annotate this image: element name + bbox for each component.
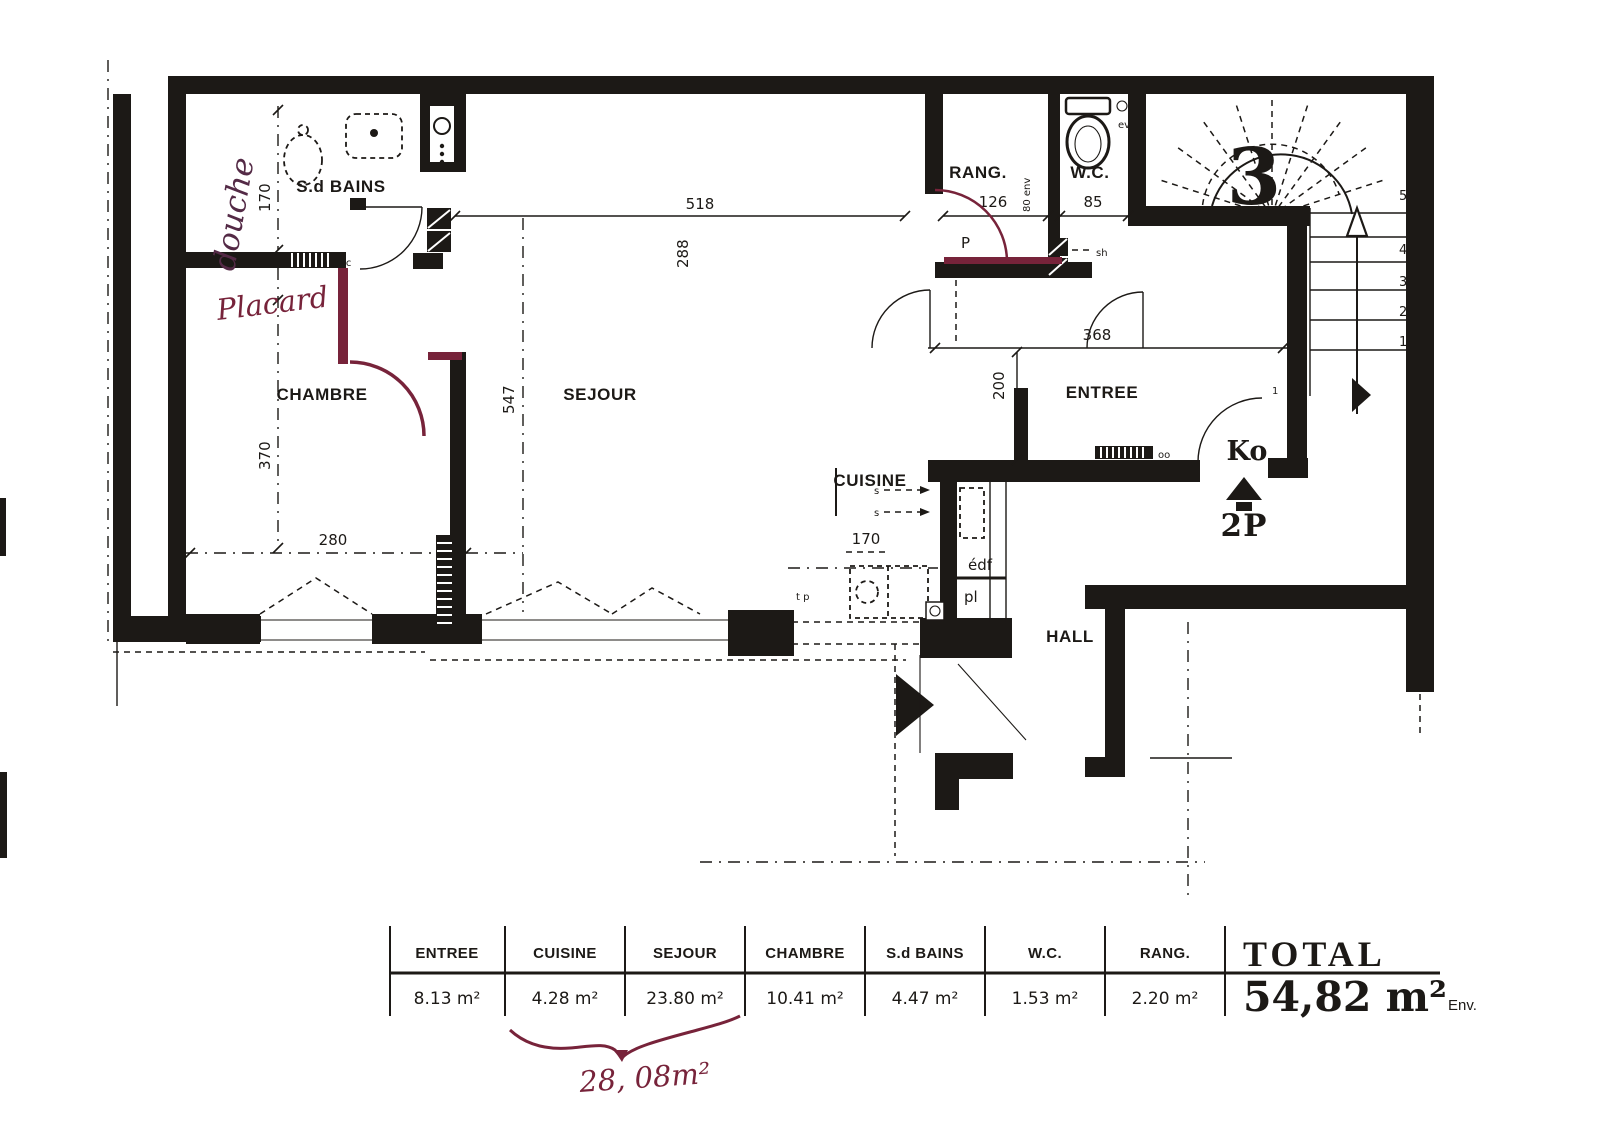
stair-arrow-up [1347, 208, 1367, 236]
col-header: CUISINE [533, 945, 597, 962]
shaft-label-edf: édf [968, 556, 993, 574]
col-value: 1.53 m² [1012, 989, 1079, 1009]
doors [360, 207, 1262, 462]
room-label-sejour: SEJOUR [563, 385, 637, 404]
label-2p: 2P [1221, 508, 1268, 544]
window-sejour-2 [612, 588, 700, 614]
room-label-sdbains: S.d BAINS [296, 177, 385, 196]
dimension-texts: 518 288 126 85 368 200 547 170 370 280 1… [256, 178, 1111, 549]
surface-table: ENTREE CUISINE SEJOUR CHAMBRE S.d BAINS … [390, 926, 1477, 1021]
col-value: 23.80 m² [646, 989, 723, 1009]
label-ko: Ko [1227, 436, 1268, 467]
room-label-chambre: CHAMBRE [276, 385, 367, 404]
col-value: 2.20 m² [1132, 989, 1199, 1009]
col-value: 8.13 m² [414, 989, 481, 1009]
col-header: CHAMBRE [765, 945, 844, 962]
dim-518: 518 [686, 195, 715, 213]
dim-80-env: 80 env [1022, 178, 1033, 212]
dim-280: 280 [319, 531, 348, 549]
dim-200: 200 [990, 371, 1008, 400]
total-suffix: Env. [1448, 997, 1477, 1014]
unit-arrow-icon [1226, 477, 1262, 500]
stair-arrow-tail-flag [1352, 378, 1371, 412]
col-header: RANG. [1140, 945, 1190, 962]
hall-direction-arrow [896, 674, 934, 736]
col-header: SEJOUR [653, 945, 717, 962]
dim-85: 85 [1083, 193, 1102, 211]
label-ev: ev [1118, 120, 1130, 131]
label-vc: vc [340, 258, 351, 269]
window-chambre [260, 578, 372, 614]
closet-rail-chambre [436, 535, 453, 630]
kitchen-counter [850, 566, 928, 618]
corridor-door-arc [872, 290, 930, 348]
dim-288: 288 [674, 239, 692, 268]
room-label-wc: W.C. [1070, 163, 1109, 182]
total-header: TOTAL [1243, 934, 1386, 974]
vent-icon [1117, 101, 1127, 111]
closet-rail-bath [292, 253, 328, 267]
label-s2: s [874, 508, 879, 519]
label-door-1: 1 [1272, 386, 1278, 397]
label-p: P [961, 234, 970, 252]
room-label-hall: HALL [1046, 627, 1094, 646]
label-oo: oo [1158, 450, 1170, 461]
bathroom-door-arc [360, 207, 422, 269]
dimension-ticks [185, 105, 1288, 558]
col-value: 4.47 m² [892, 989, 959, 1009]
staircase: 5 4 3 2 1 3 [1154, 98, 1407, 414]
table-value-row: 8.13 m² 4.28 m² 23.80 m² 10.41 m² 4.47 m… [414, 973, 1477, 1021]
scan-artifacts [0, 60, 108, 858]
handwritten-area-note: 28, 08m² [577, 1056, 711, 1099]
label-sh: sh [1096, 248, 1108, 259]
label-s1: s [874, 486, 879, 497]
col-value: 4.28 m² [532, 989, 599, 1009]
windows [258, 578, 920, 644]
room-label-cuisine: CUISINE [833, 471, 906, 490]
red-wall-mark [338, 268, 348, 364]
dim-547: 547 [500, 385, 518, 414]
room-label-rang: RANG. [949, 163, 1007, 182]
wc-toilet-tank [1066, 98, 1110, 114]
table-header-row: ENTREE CUISINE SEJOUR CHAMBRE S.d BAINS … [415, 934, 1385, 974]
kitchen-sink-icon [856, 581, 878, 603]
handwritten-placard: Placard [214, 280, 330, 328]
closet-rail-entree [1095, 446, 1153, 459]
dim-170-cuisine: 170 [852, 530, 881, 548]
room-labels: S.d BAINS CHAMBRE SEJOUR CUISINE ENTREE … [276, 163, 1138, 646]
room-label-entree: ENTREE [1066, 383, 1139, 402]
label-tp: t p [796, 592, 809, 603]
window-sejour-1 [486, 582, 612, 614]
col-value: 10.41 m² [766, 989, 843, 1009]
col-header: S.d BAINS [886, 945, 964, 962]
floor-plan-drawing: 5 4 3 2 1 3 [0, 0, 1600, 1131]
dim-370: 370 [256, 441, 274, 470]
shaft-label-pl: pl [964, 588, 978, 606]
col-header: ENTREE [415, 945, 478, 962]
total-value: 54,82 m² [1243, 973, 1447, 1021]
scanned-floor-plan: 5 4 3 2 1 3 [0, 0, 1600, 1131]
unit-tag: Ko 2P [1221, 436, 1268, 544]
wc-toilet-bowl [1067, 116, 1109, 168]
col-header: W.C. [1028, 945, 1062, 962]
dim-368: 368 [1083, 326, 1112, 344]
dim-170-bain: 170 [256, 183, 274, 212]
section-lines [113, 622, 1420, 900]
duct-box [926, 602, 944, 620]
